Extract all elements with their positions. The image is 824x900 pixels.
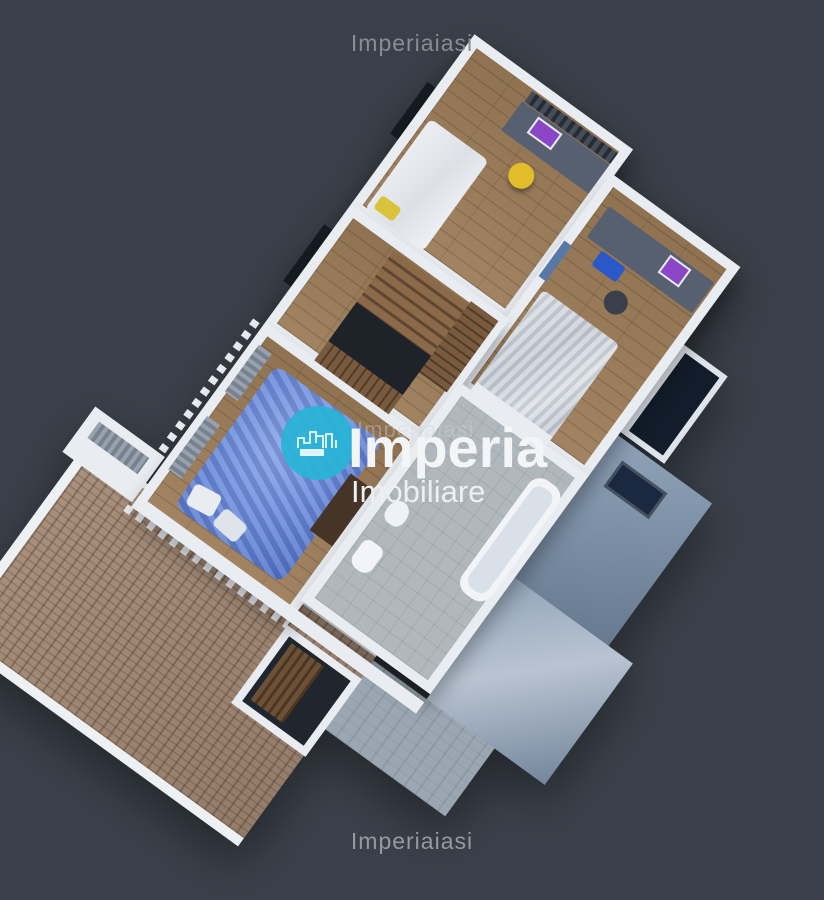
watermark-top: Imperiaiasi <box>0 30 824 57</box>
logo-brand-text: Imperia <box>348 420 547 476</box>
logo-badge <box>281 406 355 480</box>
real-estate-3d-floorplan: Imperiaiasi Imperiaiasi Imperiaiasi Impe… <box>0 0 824 900</box>
watermark-bottom: Imperiaiasi <box>0 828 824 855</box>
logo-tagline-text: Imobiliare <box>351 476 485 507</box>
city-skyline-icon <box>296 428 340 458</box>
